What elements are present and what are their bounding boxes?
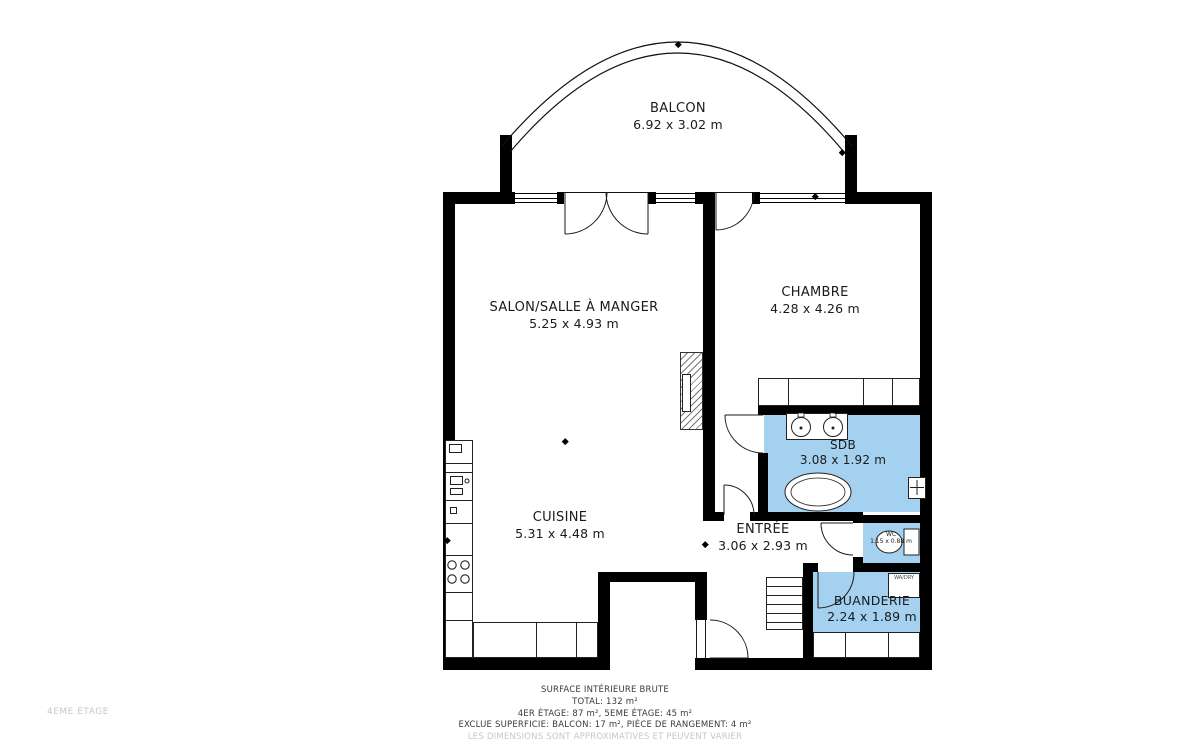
footer-line: EXCLUE SUPERFICIE: BALCON: 17 m², PIÈCE …	[458, 720, 751, 732]
room-dims: 3.06 x 2.93 m	[718, 538, 808, 554]
door-arc	[724, 485, 754, 515]
sink-drain	[832, 427, 835, 430]
room-name: BUANDERIE	[827, 593, 917, 609]
floor-level-label: 4EME ÉTAGE	[47, 707, 109, 717]
footer-disclaimer: LES DIMENSIONS SONT APPROXIMATIVES ET PE…	[458, 732, 751, 744]
room-label-balcon: BALCON 6.92 x 3.02 m	[633, 101, 723, 133]
room-dims: 1.15 x 0.88 m	[870, 539, 912, 546]
room-dims: 5.31 x 4.48 m	[515, 526, 605, 542]
room-label-chambre: CHAMBRE 4.28 x 4.26 m	[770, 285, 860, 317]
room-label-sdb: SDB 3.08 x 1.92 m	[800, 438, 886, 468]
room-label-cuisine: CUISINE 5.31 x 4.48 m	[515, 510, 605, 542]
sink-tap	[830, 413, 836, 417]
room-dims: 5.25 x 4.93 m	[490, 316, 659, 332]
sink-tap	[798, 413, 804, 417]
room-name: SDB	[800, 438, 886, 453]
room-name: CUISINE	[515, 510, 605, 526]
room-label-salon: SALON/SALLE À MANGER 5.25 x 4.93 m	[490, 300, 659, 332]
stove-burner	[461, 561, 469, 569]
room-name: SALON/SALLE À MANGER	[490, 300, 659, 316]
sink-drain	[800, 427, 803, 430]
room-name: ENTRÉE	[718, 522, 808, 538]
door-arc	[716, 192, 754, 230]
stove-burner	[448, 575, 456, 583]
room-name: BALCON	[633, 101, 723, 117]
bathtub	[785, 473, 851, 511]
surface-summary: SURFACE INTÉRIEURE BRUTE TOTAL: 132 m² 4…	[458, 685, 751, 744]
room-name: CHAMBRE	[770, 285, 860, 301]
room-label-buanderie: BUANDERIE 2.24 x 1.89 m	[827, 593, 917, 624]
door-arc	[821, 523, 853, 555]
stove-burner	[448, 561, 456, 569]
door-arc	[725, 415, 763, 453]
room-dims: 3.08 x 1.92 m	[800, 453, 886, 468]
room-dims: 2.24 x 1.89 m	[827, 609, 917, 625]
room-dims: 4.28 x 4.26 m	[770, 301, 860, 317]
door-arc	[606, 192, 648, 234]
footer-line: 4ER ÉTAGE: 87 m², 5EME ÉTAGE: 45 m²	[458, 709, 751, 721]
door-arc	[565, 192, 607, 234]
door-arc	[710, 620, 748, 658]
room-dims: 6.92 x 3.02 m	[633, 117, 723, 133]
plan-linework-layer	[0, 0, 1200, 750]
stove-burner	[461, 575, 469, 583]
room-label-entree: ENTRÉE 3.06 x 2.93 m	[718, 522, 808, 554]
room-label-wc: WC 1.15 x 0.88 m	[870, 532, 912, 546]
floor-plan: WA/DRY	[0, 0, 1200, 750]
footer-line: TOTAL: 132 m²	[458, 697, 751, 709]
footer-line: SURFACE INTÉRIEURE BRUTE	[458, 685, 751, 697]
kitchen-faucet	[465, 479, 469, 483]
